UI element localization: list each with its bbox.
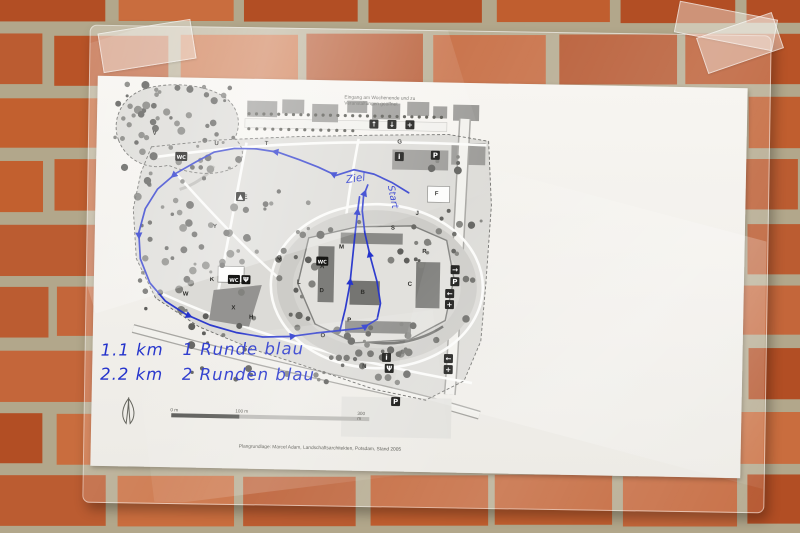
tree — [124, 82, 130, 88]
svg-text:Ψ: Ψ — [386, 365, 392, 373]
restaurant-icon: Ψ — [241, 275, 250, 284]
arrow-up-icon: ↑ — [369, 120, 378, 129]
map-letter-O: O — [320, 333, 325, 339]
svg-text:WC: WC — [318, 259, 328, 265]
brick — [244, 0, 358, 22]
svg-text:▲: ▲ — [238, 193, 244, 201]
brick — [0, 161, 43, 212]
info-icon: i — [382, 353, 391, 362]
svg-text:+: + — [446, 301, 452, 309]
allee-tree — [366, 114, 369, 117]
tree — [138, 278, 143, 283]
building-block — [247, 101, 277, 118]
svg-text:→: → — [452, 266, 458, 274]
map-letter-D: D — [319, 288, 324, 294]
svg-text:Ψ: Ψ — [243, 276, 249, 284]
svg-text:P: P — [393, 398, 398, 406]
svg-text:←: ← — [445, 355, 451, 363]
svg-text:WC: WC — [177, 155, 187, 161]
scale-tick-0: 0 m — [170, 407, 178, 412]
first-aid-icon: + — [444, 365, 453, 374]
parking-icon: P — [450, 277, 459, 286]
allee-tree — [403, 115, 406, 118]
brick — [0, 287, 48, 338]
svg-text:i: i — [385, 354, 388, 362]
map-letter-H: H — [249, 315, 253, 321]
parking-icon: P — [431, 151, 440, 160]
brick — [0, 0, 105, 21]
arrow-left-icon: ← — [445, 289, 454, 298]
map-letter-J: J — [415, 211, 418, 217]
tree — [113, 136, 117, 140]
allee-tree — [307, 113, 310, 116]
map-entrance-notice: Eingang am Wochenende und zu Veranstaltu… — [344, 96, 440, 109]
scale-tick-100: 100 m — [235, 408, 248, 413]
brick — [368, 0, 481, 23]
allee-tree — [351, 114, 354, 117]
map-letter-N: N — [362, 364, 366, 370]
castle-east-block — [415, 262, 440, 308]
map-letter-W: W — [183, 291, 189, 297]
toilets-icon: WC — [316, 257, 328, 266]
map-letter-B: B — [360, 290, 365, 296]
building-block — [312, 104, 338, 122]
tree — [115, 101, 121, 107]
tree — [126, 94, 129, 97]
map-letter-S: S — [391, 225, 395, 231]
tree — [144, 307, 147, 310]
svg-text:+: + — [407, 121, 413, 129]
svg-text:↑: ↑ — [371, 120, 377, 128]
svg-text:i: i — [398, 153, 401, 161]
japanese-garden-house — [427, 186, 449, 202]
handwritten-distance-1: 1.1 km 1 Runde blau — [101, 339, 305, 359]
tree — [227, 86, 232, 91]
map-letter-Q: Q — [277, 255, 282, 261]
map-letter-X: X — [231, 305, 235, 311]
map-letter-P: P — [347, 318, 351, 324]
tree — [121, 164, 128, 171]
allee-tree — [277, 113, 280, 116]
map-letter-C: C — [408, 282, 413, 288]
map-letter-R: R — [422, 249, 427, 255]
castle-north-range — [341, 232, 403, 244]
svg-text:WC: WC — [229, 278, 239, 284]
playground-icon: ▲ — [236, 192, 245, 201]
map-letter-K: K — [210, 277, 215, 283]
map-letter-T: T — [265, 141, 269, 147]
brick — [0, 33, 42, 84]
map-letter-M: M — [339, 244, 344, 250]
first-aid-icon: + — [405, 120, 414, 129]
parking-icon: P — [391, 397, 400, 406]
toilets-icon: WC — [228, 275, 240, 284]
arrow-down-icon: ↓ — [387, 120, 396, 129]
arrow-left-icon: ← — [444, 354, 453, 363]
map-letter-L: L — [297, 280, 301, 286]
handwritten-distance-2: 2.2 km 2 Runden blau — [100, 365, 315, 384]
map-letter-Y: Y — [213, 224, 217, 230]
svg-text:↓: ↓ — [389, 121, 395, 129]
brick — [0, 413, 42, 463]
brick — [497, 0, 610, 22]
building-block — [453, 105, 479, 121]
legend-letter-items — [509, 112, 731, 116]
north-arrow-icon — [117, 396, 140, 426]
map-letter-F: F — [435, 191, 439, 197]
svg-text:←: ← — [447, 290, 453, 298]
building-block — [282, 99, 304, 113]
park-map-sheet: UTYQSFABCLXWHONPRMGJEKDV↑↓+iP→P←+←+WCWC▲… — [90, 76, 747, 478]
svg-text:+: + — [445, 366, 451, 374]
arrow-right-icon: → — [451, 265, 460, 274]
info-icon: i — [395, 152, 404, 161]
svg-text:P: P — [433, 152, 438, 160]
brick — [119, 0, 234, 21]
tree — [142, 288, 148, 294]
photo-of-park-map-on-brick-wall: { "colors":{"brick":"#bf5e31","mortar":"… — [0, 0, 800, 533]
first-aid-icon: + — [445, 300, 454, 309]
park-map-drawing: UTYQSFABCLXWHONPRMGJEKDV↑↓+iP→P←+←+WCWC▲… — [90, 76, 747, 478]
restaurant-icon: Ψ — [385, 364, 394, 373]
toilets-icon: WC — [175, 152, 187, 161]
scale-tick-300: 300 m — [357, 410, 369, 420]
map-letter-G: G — [397, 140, 402, 146]
notice-line2: Veranstaltungen geöffnet — [344, 101, 397, 107]
map-letter-V: V — [153, 131, 157, 137]
allee-tree — [358, 114, 361, 117]
svg-text:P: P — [452, 278, 457, 286]
map-letter-U: U — [214, 141, 218, 147]
allee-tree — [344, 114, 347, 117]
tree — [202, 331, 206, 335]
